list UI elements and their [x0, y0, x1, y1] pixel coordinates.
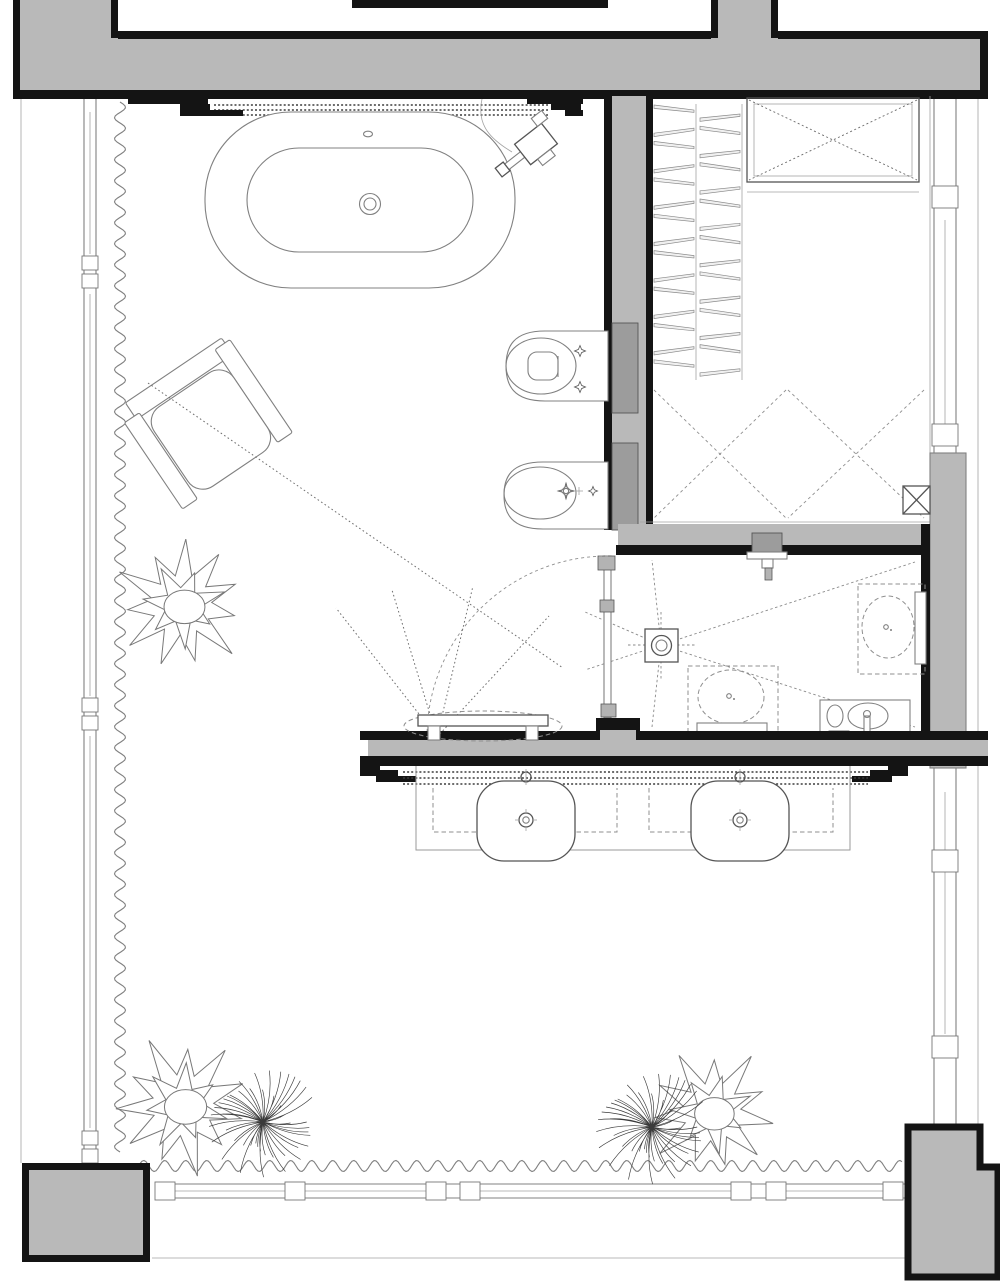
wardrobe-crossed-zone: [654, 390, 924, 518]
window-mullion-box: [426, 1182, 446, 1200]
window-mullion-box: [82, 256, 98, 270]
walk-in-closet: [654, 96, 930, 518]
vanity-basin-left: [477, 769, 575, 861]
window-mullion-box: [460, 1182, 480, 1200]
floor-plan-page: [0, 0, 1000, 1288]
window-mullion-box: [155, 1182, 175, 1200]
wardrobe-hanger-rails: [654, 105, 740, 376]
window-wall-left: [21, 96, 98, 1163]
ceiling-unit-dashed-left: [688, 666, 778, 733]
shower-drain: [645, 629, 678, 662]
wall-center-service: [604, 96, 653, 530]
window-mullion-box: [932, 186, 958, 208]
window-mullion-box: [932, 1036, 958, 1058]
bidet: [504, 462, 608, 529]
window-wall-bottom: [152, 1182, 908, 1258]
door-swing-arc: [427, 556, 608, 737]
wall-top-band: [13, 0, 988, 99]
vanity-basin-right: [691, 769, 789, 861]
cistern-toilet: [612, 323, 638, 413]
door-pier: [596, 718, 640, 732]
vanity-counter: [403, 766, 868, 861]
glass-pivot-door: [427, 556, 616, 737]
window-mullion-box: [82, 716, 98, 730]
cistern-bidet: [612, 443, 638, 530]
shower-head: [747, 533, 787, 580]
window-mullion-box: [82, 1149, 98, 1163]
window-mullion-box: [82, 698, 98, 712]
column-bottom-right: [908, 1127, 998, 1277]
window-mullion-box: [932, 850, 958, 872]
bathtub: [205, 99, 515, 288]
shaft-box: [903, 486, 930, 514]
toilet: [506, 331, 608, 401]
window-mullion-box: [82, 1131, 98, 1145]
leaf-plant: [120, 539, 236, 664]
ceiling-unit-dashed-right: [858, 584, 926, 674]
window-mullion-box: [731, 1182, 751, 1200]
window-mullion-box: [285, 1182, 305, 1200]
wall-stub-top: [352, 0, 608, 8]
floor-plan-canvas: [0, 0, 1000, 1288]
wardrobe-top-cabinet: [747, 98, 919, 192]
window-mullion-box: [932, 424, 958, 446]
column-bottom-left: [26, 1167, 147, 1259]
window-mullion-box: [766, 1182, 786, 1200]
leaf-plant: [655, 1055, 773, 1164]
sight-lines: [336, 586, 549, 737]
window-mullion-box: [82, 274, 98, 288]
window-mullion-box: [883, 1182, 903, 1200]
wall-divider-shower: [616, 522, 966, 555]
